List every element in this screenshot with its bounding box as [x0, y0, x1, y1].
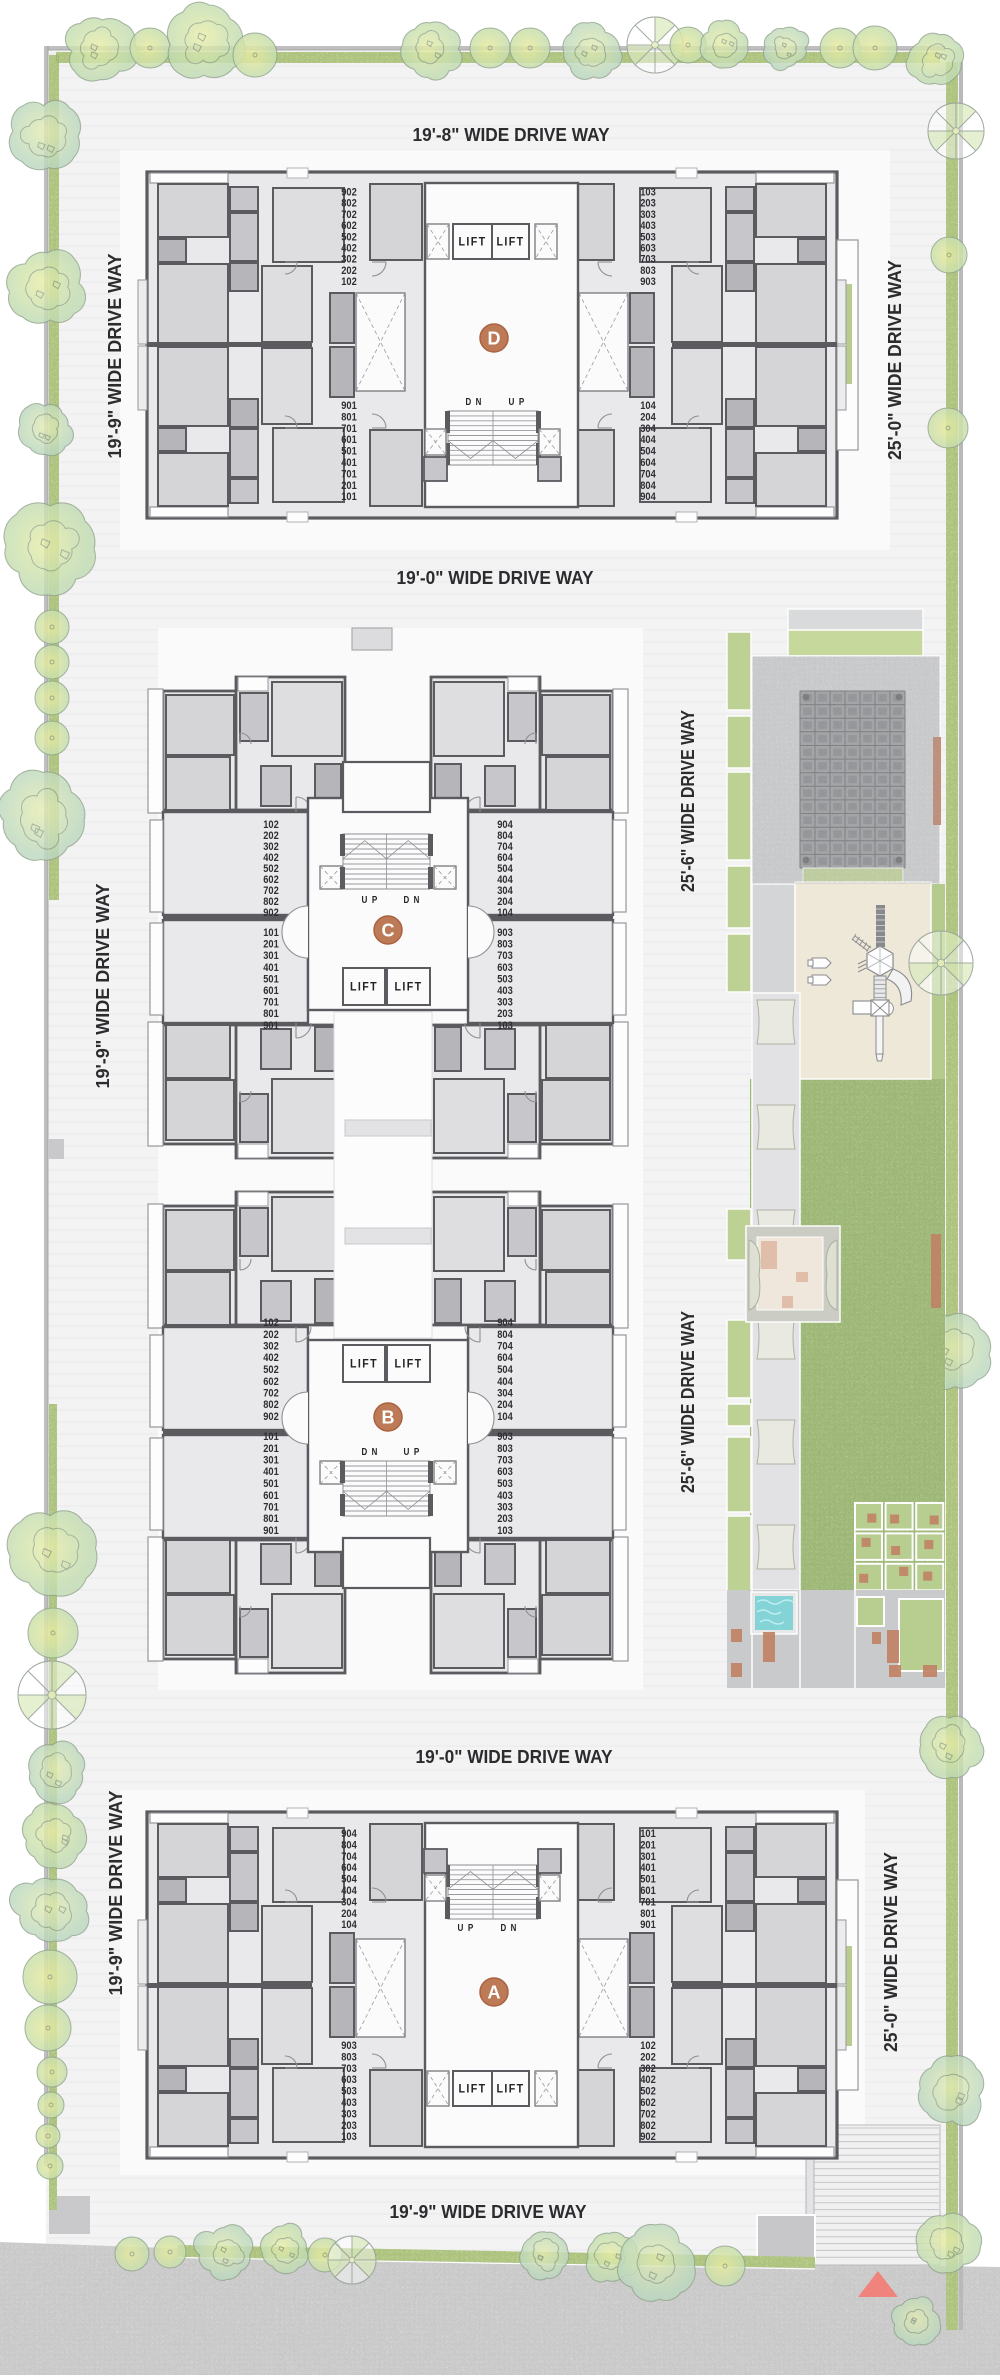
svg-text:D: D — [488, 329, 501, 349]
svg-text:304: 304 — [497, 1388, 513, 1400]
svg-text:103: 103 — [341, 2131, 357, 2143]
svg-text:404: 404 — [640, 434, 656, 446]
svg-text:601: 601 — [640, 1885, 656, 1897]
svg-text:703: 703 — [497, 950, 513, 962]
svg-text:803: 803 — [341, 2051, 357, 2063]
svg-text:403: 403 — [497, 1490, 513, 1502]
svg-text:904: 904 — [640, 491, 656, 503]
svg-text:403: 403 — [640, 220, 656, 232]
svg-text:701: 701 — [341, 423, 357, 435]
svg-text:501: 501 — [263, 1478, 279, 1490]
svg-text:202: 202 — [263, 1329, 279, 1341]
svg-text:203: 203 — [640, 198, 656, 210]
svg-text:903: 903 — [497, 1431, 513, 1443]
svg-text:19'-9" WIDE DRIVE WAY: 19'-9" WIDE DRIVE WAY — [105, 1790, 126, 1996]
svg-text:903: 903 — [497, 927, 513, 939]
svg-text:19'-0" WIDE DRIVE WAY: 19'-0" WIDE DRIVE WAY — [397, 567, 595, 588]
svg-text:C: C — [382, 921, 395, 941]
svg-text:402: 402 — [640, 2074, 656, 2086]
svg-text:402: 402 — [263, 1352, 279, 1364]
svg-text:25'-0" WIDE DRIVE WAY: 25'-0" WIDE DRIVE WAY — [880, 1851, 901, 2052]
svg-text:603: 603 — [497, 1466, 513, 1478]
svg-text:LIFT: LIFT — [459, 2084, 487, 2096]
svg-text:301: 301 — [263, 1455, 279, 1467]
svg-text:503: 503 — [341, 2086, 357, 2098]
svg-text:903: 903 — [341, 2040, 357, 2052]
svg-text:304: 304 — [640, 423, 656, 435]
svg-text:D N: D N — [362, 1446, 379, 1458]
svg-text:302: 302 — [263, 1341, 279, 1353]
svg-text:303: 303 — [497, 1502, 513, 1514]
svg-text:204: 204 — [497, 1399, 513, 1411]
svg-text:403: 403 — [497, 985, 513, 997]
svg-text:901: 901 — [341, 400, 357, 412]
svg-text:19'-0" WIDE DRIVE WAY: 19'-0" WIDE DRIVE WAY — [416, 1746, 614, 1767]
svg-text:902: 902 — [341, 187, 357, 199]
svg-text:401: 401 — [263, 962, 279, 974]
svg-text:503: 503 — [640, 231, 656, 243]
svg-text:604: 604 — [341, 1862, 357, 1874]
svg-text:502: 502 — [263, 1364, 279, 1376]
svg-text:104: 104 — [341, 1919, 357, 1931]
svg-text:201: 201 — [640, 1839, 656, 1851]
svg-text:604: 604 — [640, 457, 656, 469]
svg-text:803: 803 — [497, 939, 513, 951]
svg-text:501: 501 — [341, 446, 357, 458]
svg-text:604: 604 — [497, 1352, 513, 1364]
svg-text:902: 902 — [263, 907, 279, 919]
svg-text:704: 704 — [497, 1341, 513, 1353]
svg-text:301: 301 — [640, 1851, 656, 1863]
svg-text:802: 802 — [263, 1399, 279, 1411]
svg-text:25'-0" WIDE DRIVE WAY: 25'-0" WIDE DRIVE WAY — [884, 259, 905, 460]
svg-text:901: 901 — [263, 1525, 279, 1537]
svg-text:203: 203 — [341, 2120, 357, 2132]
svg-text:701: 701 — [263, 1502, 279, 1514]
svg-text:102: 102 — [341, 276, 357, 288]
svg-text:202: 202 — [640, 2051, 656, 2063]
svg-text:LIFT: LIFT — [497, 2084, 525, 2096]
svg-text:302: 302 — [341, 254, 357, 266]
svg-text:B: B — [382, 1408, 395, 1428]
svg-text:204: 204 — [640, 411, 656, 423]
svg-text:104: 104 — [640, 400, 656, 412]
svg-text:804: 804 — [497, 1329, 513, 1341]
svg-text:904: 904 — [341, 1828, 357, 1840]
svg-text:703: 703 — [341, 2063, 357, 2075]
svg-text:902: 902 — [640, 2131, 656, 2143]
svg-text:601: 601 — [263, 985, 279, 997]
svg-text:503: 503 — [497, 973, 513, 985]
svg-text:801: 801 — [341, 411, 357, 423]
svg-text:LIFT: LIFT — [350, 1359, 378, 1371]
svg-text:U P: U P — [509, 396, 526, 408]
svg-text:203: 203 — [497, 1008, 513, 1020]
svg-text:U P: U P — [362, 894, 379, 906]
svg-text:103: 103 — [640, 187, 656, 199]
svg-text:U P: U P — [404, 1446, 421, 1458]
svg-text:102: 102 — [640, 2040, 656, 2052]
svg-text:603: 603 — [497, 962, 513, 974]
svg-text:19'-9" WIDE DRIVE WAY: 19'-9" WIDE DRIVE WAY — [104, 253, 125, 459]
svg-text:801: 801 — [263, 1008, 279, 1020]
svg-text:101: 101 — [263, 927, 279, 939]
svg-text:703: 703 — [497, 1455, 513, 1467]
svg-text:401: 401 — [640, 1862, 656, 1874]
svg-text:104: 104 — [497, 907, 513, 919]
svg-text:602: 602 — [341, 220, 357, 232]
svg-text:303: 303 — [497, 997, 513, 1009]
svg-text:19'-9" WIDE DRIVE WAY: 19'-9" WIDE DRIVE WAY — [92, 883, 113, 1089]
svg-text:LIFT: LIFT — [350, 982, 378, 994]
svg-text:D N: D N — [466, 396, 483, 408]
svg-text:501: 501 — [640, 1874, 656, 1886]
svg-text:504: 504 — [640, 446, 656, 458]
svg-text:801: 801 — [263, 1513, 279, 1525]
svg-text:704: 704 — [640, 468, 656, 480]
svg-text:501: 501 — [263, 973, 279, 985]
svg-text:203: 203 — [497, 1513, 513, 1525]
svg-text:101: 101 — [341, 491, 357, 503]
svg-text:703: 703 — [640, 254, 656, 266]
svg-text:603: 603 — [341, 2074, 357, 2086]
svg-text:D N: D N — [404, 894, 421, 906]
svg-text:104: 104 — [497, 1411, 513, 1423]
svg-text:302: 302 — [640, 2063, 656, 2075]
svg-text:201: 201 — [263, 939, 279, 951]
svg-text:D N: D N — [501, 1922, 518, 1934]
svg-text:701: 701 — [640, 1896, 656, 1908]
svg-text:702: 702 — [640, 2108, 656, 2120]
svg-text:804: 804 — [341, 1839, 357, 1851]
svg-text:202: 202 — [341, 265, 357, 277]
svg-text:903: 903 — [640, 276, 656, 288]
svg-text:503: 503 — [497, 1478, 513, 1490]
svg-text:801: 801 — [640, 1908, 656, 1920]
svg-text:502: 502 — [341, 231, 357, 243]
svg-text:201: 201 — [341, 480, 357, 492]
svg-text:103: 103 — [497, 1525, 513, 1537]
svg-text:404: 404 — [497, 1376, 513, 1388]
svg-text:LIFT: LIFT — [497, 237, 525, 249]
svg-text:802: 802 — [640, 2120, 656, 2132]
svg-text:101: 101 — [263, 1431, 279, 1443]
svg-text:303: 303 — [640, 209, 656, 221]
svg-text:25'-6" WIDE DRIVE WAY: 25'-6" WIDE DRIVE WAY — [677, 709, 698, 892]
svg-text:LIFT: LIFT — [395, 982, 423, 994]
svg-text:304: 304 — [341, 1896, 357, 1908]
svg-text:402: 402 — [341, 243, 357, 255]
svg-text:803: 803 — [497, 1443, 513, 1455]
svg-text:A: A — [488, 1983, 501, 2003]
svg-text:403: 403 — [341, 2097, 357, 2109]
svg-text:702: 702 — [263, 1388, 279, 1400]
svg-text:603: 603 — [640, 243, 656, 255]
svg-text:504: 504 — [497, 1364, 513, 1376]
svg-text:204: 204 — [341, 1908, 357, 1920]
svg-text:701: 701 — [263, 997, 279, 1009]
svg-text:19'-9" WIDE DRIVE WAY: 19'-9" WIDE DRIVE WAY — [390, 2201, 588, 2222]
svg-text:702: 702 — [341, 209, 357, 221]
svg-text:602: 602 — [640, 2097, 656, 2109]
svg-text:102: 102 — [263, 1317, 279, 1329]
svg-text:901: 901 — [640, 1919, 656, 1931]
svg-text:25'-6" WIDE DRIVE WAY: 25'-6" WIDE DRIVE WAY — [677, 1310, 698, 1493]
svg-text:901: 901 — [263, 1020, 279, 1032]
svg-text:401: 401 — [263, 1466, 279, 1478]
svg-text:201: 201 — [263, 1443, 279, 1455]
svg-text:601: 601 — [263, 1490, 279, 1502]
svg-text:804: 804 — [640, 480, 656, 492]
svg-text:301: 301 — [263, 950, 279, 962]
svg-text:701: 701 — [341, 468, 357, 480]
svg-text:103: 103 — [497, 1020, 513, 1032]
svg-text:U P: U P — [458, 1922, 475, 1934]
svg-text:904: 904 — [497, 1317, 513, 1329]
svg-text:902: 902 — [263, 1411, 279, 1423]
svg-text:303: 303 — [341, 2108, 357, 2120]
svg-text:803: 803 — [640, 265, 656, 277]
svg-text:704: 704 — [341, 1851, 357, 1863]
svg-text:LIFT: LIFT — [395, 1359, 423, 1371]
svg-text:602: 602 — [263, 1376, 279, 1388]
svg-text:401: 401 — [341, 457, 357, 469]
svg-text:LIFT: LIFT — [459, 237, 487, 249]
svg-text:404: 404 — [341, 1885, 357, 1897]
svg-text:802: 802 — [341, 198, 357, 210]
svg-text:19'-8" WIDE DRIVE WAY: 19'-8" WIDE DRIVE WAY — [413, 124, 611, 145]
svg-text:101: 101 — [640, 1828, 656, 1840]
svg-text:502: 502 — [640, 2086, 656, 2098]
svg-text:504: 504 — [341, 1874, 357, 1886]
svg-text:601: 601 — [341, 434, 357, 446]
